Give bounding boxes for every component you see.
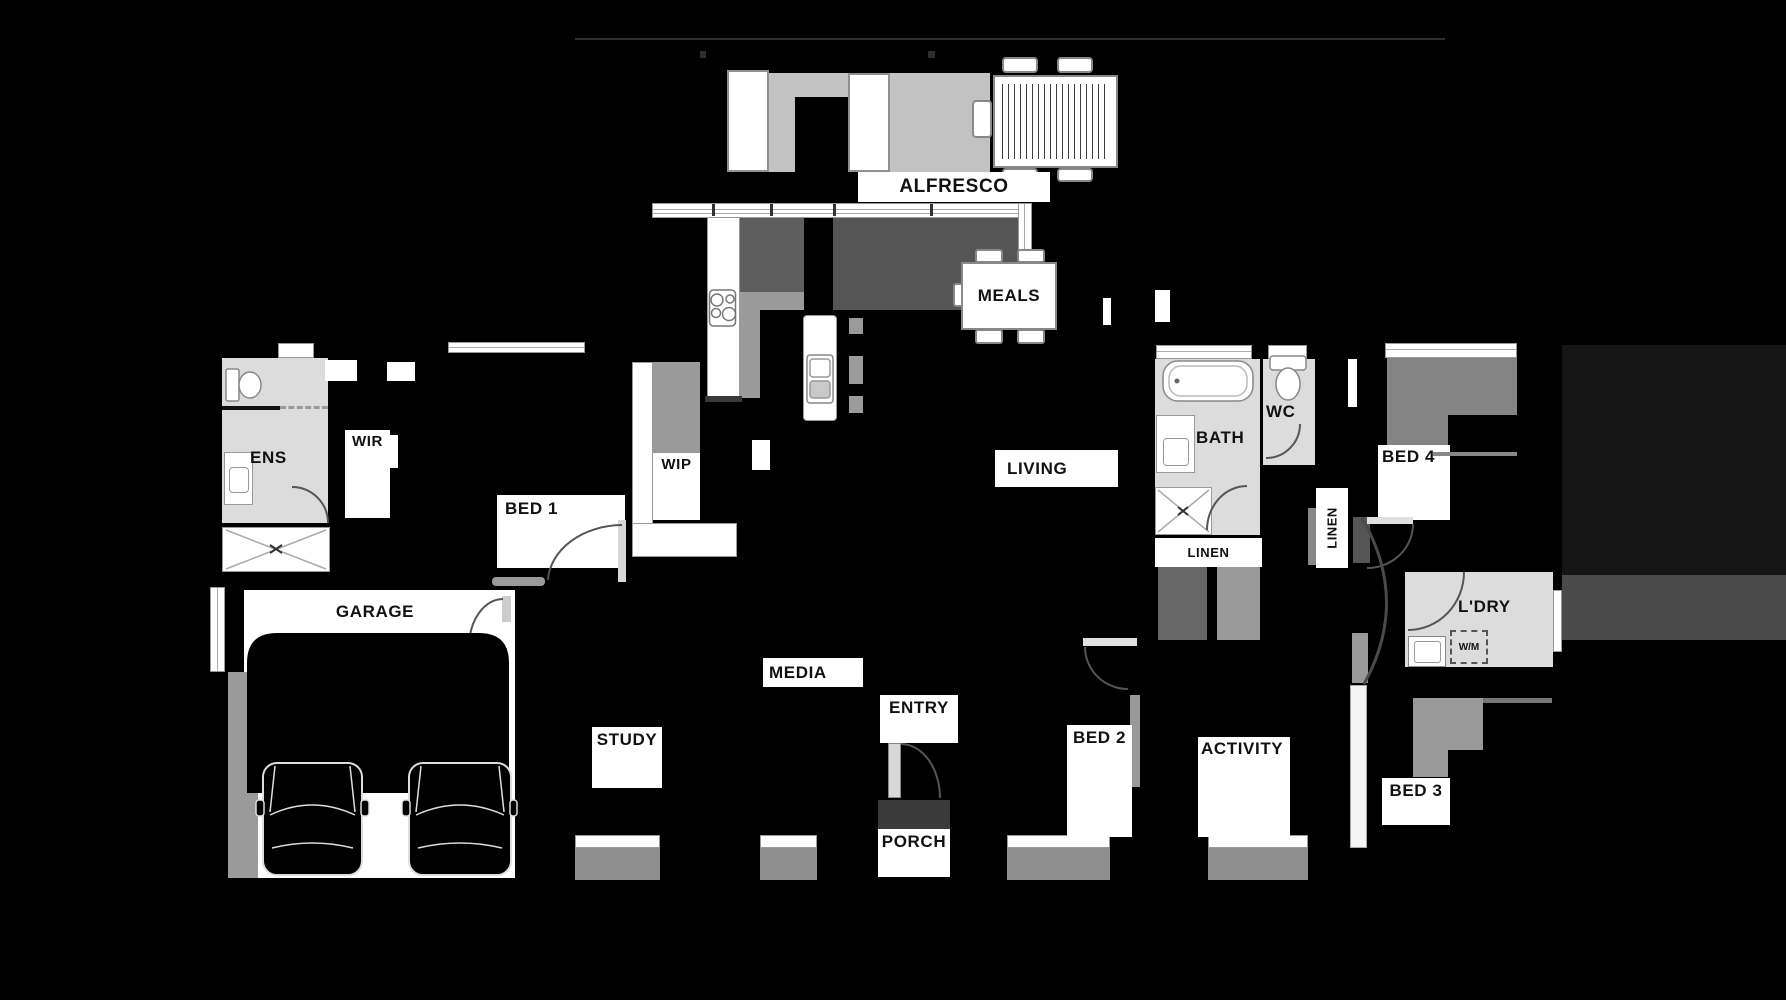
bed1-window (448, 342, 585, 353)
stacker-door (652, 203, 1032, 218)
dining-chair (1017, 329, 1045, 344)
site-shadow (1562, 345, 1786, 575)
room-label-media: MEDIA (763, 658, 863, 687)
room-label-ldry: L'DRY (1458, 597, 1511, 617)
media-window (760, 835, 817, 848)
room-label-wir: WIR (345, 430, 390, 518)
alfresco-opening (795, 97, 848, 172)
room-label-living: LIVING (995, 450, 1118, 487)
bed4-door-leaf (1367, 517, 1413, 524)
robe-track-line (1483, 698, 1552, 703)
bath-shower (1155, 487, 1212, 535)
site-boundary-line (575, 38, 1445, 40)
door-jamb (390, 435, 398, 468)
front-door-leaf (888, 743, 901, 798)
room-label-meals: MEALS (961, 262, 1057, 330)
room-label-garage: GARAGE (310, 599, 440, 625)
outdoor-chair (972, 100, 992, 138)
kitchen-floor (740, 310, 760, 398)
bar-stool (849, 356, 863, 384)
bath-vanity (1156, 415, 1195, 473)
room-label-ens: ENS (250, 448, 287, 468)
outdoor-chair (1057, 57, 1093, 73)
tub-bowl (1414, 641, 1441, 663)
hall-wall (1350, 685, 1367, 848)
room-label-bed3: BED 3 (1382, 778, 1450, 825)
laundry-tub (1408, 636, 1446, 667)
room-label-activity: ACTIVITY (1198, 737, 1290, 837)
robe (1448, 358, 1517, 415)
garage-step-strip (228, 672, 258, 878)
ens-screen-wall (222, 406, 280, 410)
wall-nib (1103, 298, 1111, 325)
bar-stool (849, 396, 863, 413)
floor-plan: ALFRESCO MEALS LIVING ENS WIR BED 1 WIP (0, 0, 1786, 1000)
basin (1163, 438, 1189, 466)
pantry-bench (632, 523, 737, 557)
window-glass (1007, 848, 1110, 880)
garage-window (210, 587, 225, 672)
outdoor-chair (1002, 57, 1038, 73)
alfresco-pillar (727, 70, 769, 172)
door-jamb (833, 204, 836, 216)
wall-nib (752, 440, 770, 470)
linen-door (1308, 508, 1316, 565)
side-path (1562, 575, 1786, 640)
room-label-linen: LINEN (1155, 538, 1262, 567)
laundry-external-door (1553, 590, 1562, 652)
wall-nib (1155, 290, 1170, 322)
robe (1387, 358, 1448, 445)
ens-screen-dashed (280, 406, 328, 409)
dining-chair (975, 249, 1003, 263)
room-label-bed1: BED 1 (497, 495, 625, 568)
bed4-window (1385, 343, 1517, 358)
room-label-alfresco: ALFRESCO (858, 172, 1050, 202)
alfresco-pillar (848, 73, 890, 172)
wc-window (1268, 345, 1307, 359)
ens-window (278, 343, 314, 358)
kitchen-floor (740, 217, 804, 292)
kitchen-bench (707, 217, 740, 398)
robe-track-line (1433, 452, 1517, 456)
room-label-linen-hall: LINEN (1325, 507, 1340, 549)
room-label-wc: WC (1266, 402, 1296, 422)
window-glass (575, 848, 660, 880)
room-label-wip: WIP (653, 453, 700, 520)
robe-shelf (325, 360, 357, 381)
robe-shelf (387, 362, 415, 381)
outdoor-table (993, 75, 1118, 168)
kitchen-bench-edge (705, 396, 742, 402)
bath-window (1156, 345, 1252, 359)
washing-machine: W/M (1450, 630, 1488, 664)
ens-vanity (224, 452, 253, 505)
dining-chair (1017, 249, 1045, 263)
bed1-door-jamb (618, 520, 626, 582)
window-glass (1208, 848, 1308, 880)
kitchen-floor (740, 292, 804, 310)
boundary-peg-icon (928, 51, 935, 58)
room-label-entry: ENTRY (880, 695, 958, 743)
robe (1448, 698, 1483, 750)
basin (229, 467, 249, 493)
wall-nib (1348, 359, 1357, 407)
hall-robe (1352, 633, 1368, 683)
wip-floor (653, 362, 700, 453)
robe (1158, 567, 1207, 640)
dining-chair (975, 329, 1003, 344)
room-label-bath: BATH (1196, 428, 1244, 448)
room-label-porch: PORCH (878, 829, 950, 877)
pantry-bench (632, 362, 653, 548)
robe (1217, 567, 1260, 640)
boundary-peg-icon (700, 51, 706, 58)
island-bench (803, 315, 837, 421)
study-window (575, 835, 660, 848)
bar-stool (849, 318, 863, 334)
porch-slab (878, 800, 950, 829)
door-jamb (930, 204, 933, 216)
table-slats (1002, 84, 1109, 159)
garage-floor (244, 590, 515, 878)
door-jamb (712, 204, 715, 216)
robe (1413, 698, 1448, 777)
window-glass (760, 848, 817, 880)
outdoor-chair (1057, 168, 1093, 182)
bed2-door-leaf (1083, 638, 1137, 646)
ens-shower (222, 527, 330, 572)
bed1-door-leaf (492, 577, 545, 586)
garage-door-jamb (502, 596, 511, 622)
door-jamb (770, 204, 773, 216)
room-label-study: STUDY (592, 727, 662, 788)
room-label-bed4: BED 4 (1378, 445, 1450, 520)
linen-cupboard: LINEN (1316, 488, 1348, 568)
room-label-bed2: BED 2 (1067, 725, 1132, 837)
